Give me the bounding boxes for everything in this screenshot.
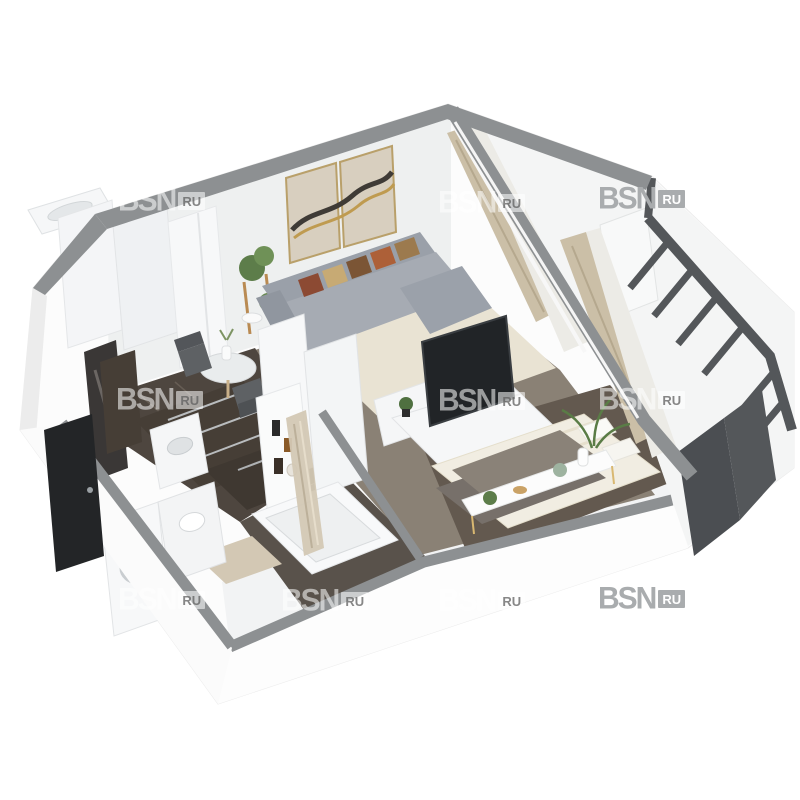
- console-vase-sage: [553, 463, 567, 477]
- floorplan-render: BSNRUBSNRUBSNRUBSNRUBSNRUBSNRUBSNRUBSNRU…: [0, 0, 800, 800]
- apartment-3d-svg: [0, 0, 800, 800]
- kitchen-upper-cabinet: [100, 350, 142, 454]
- shelf-bottle-dark: [274, 458, 283, 474]
- console-plant: [483, 491, 497, 505]
- console-vase-white: [578, 448, 588, 466]
- shelf-bottle-black: [272, 420, 280, 436]
- console-dish: [513, 486, 527, 494]
- door-handle: [87, 487, 93, 493]
